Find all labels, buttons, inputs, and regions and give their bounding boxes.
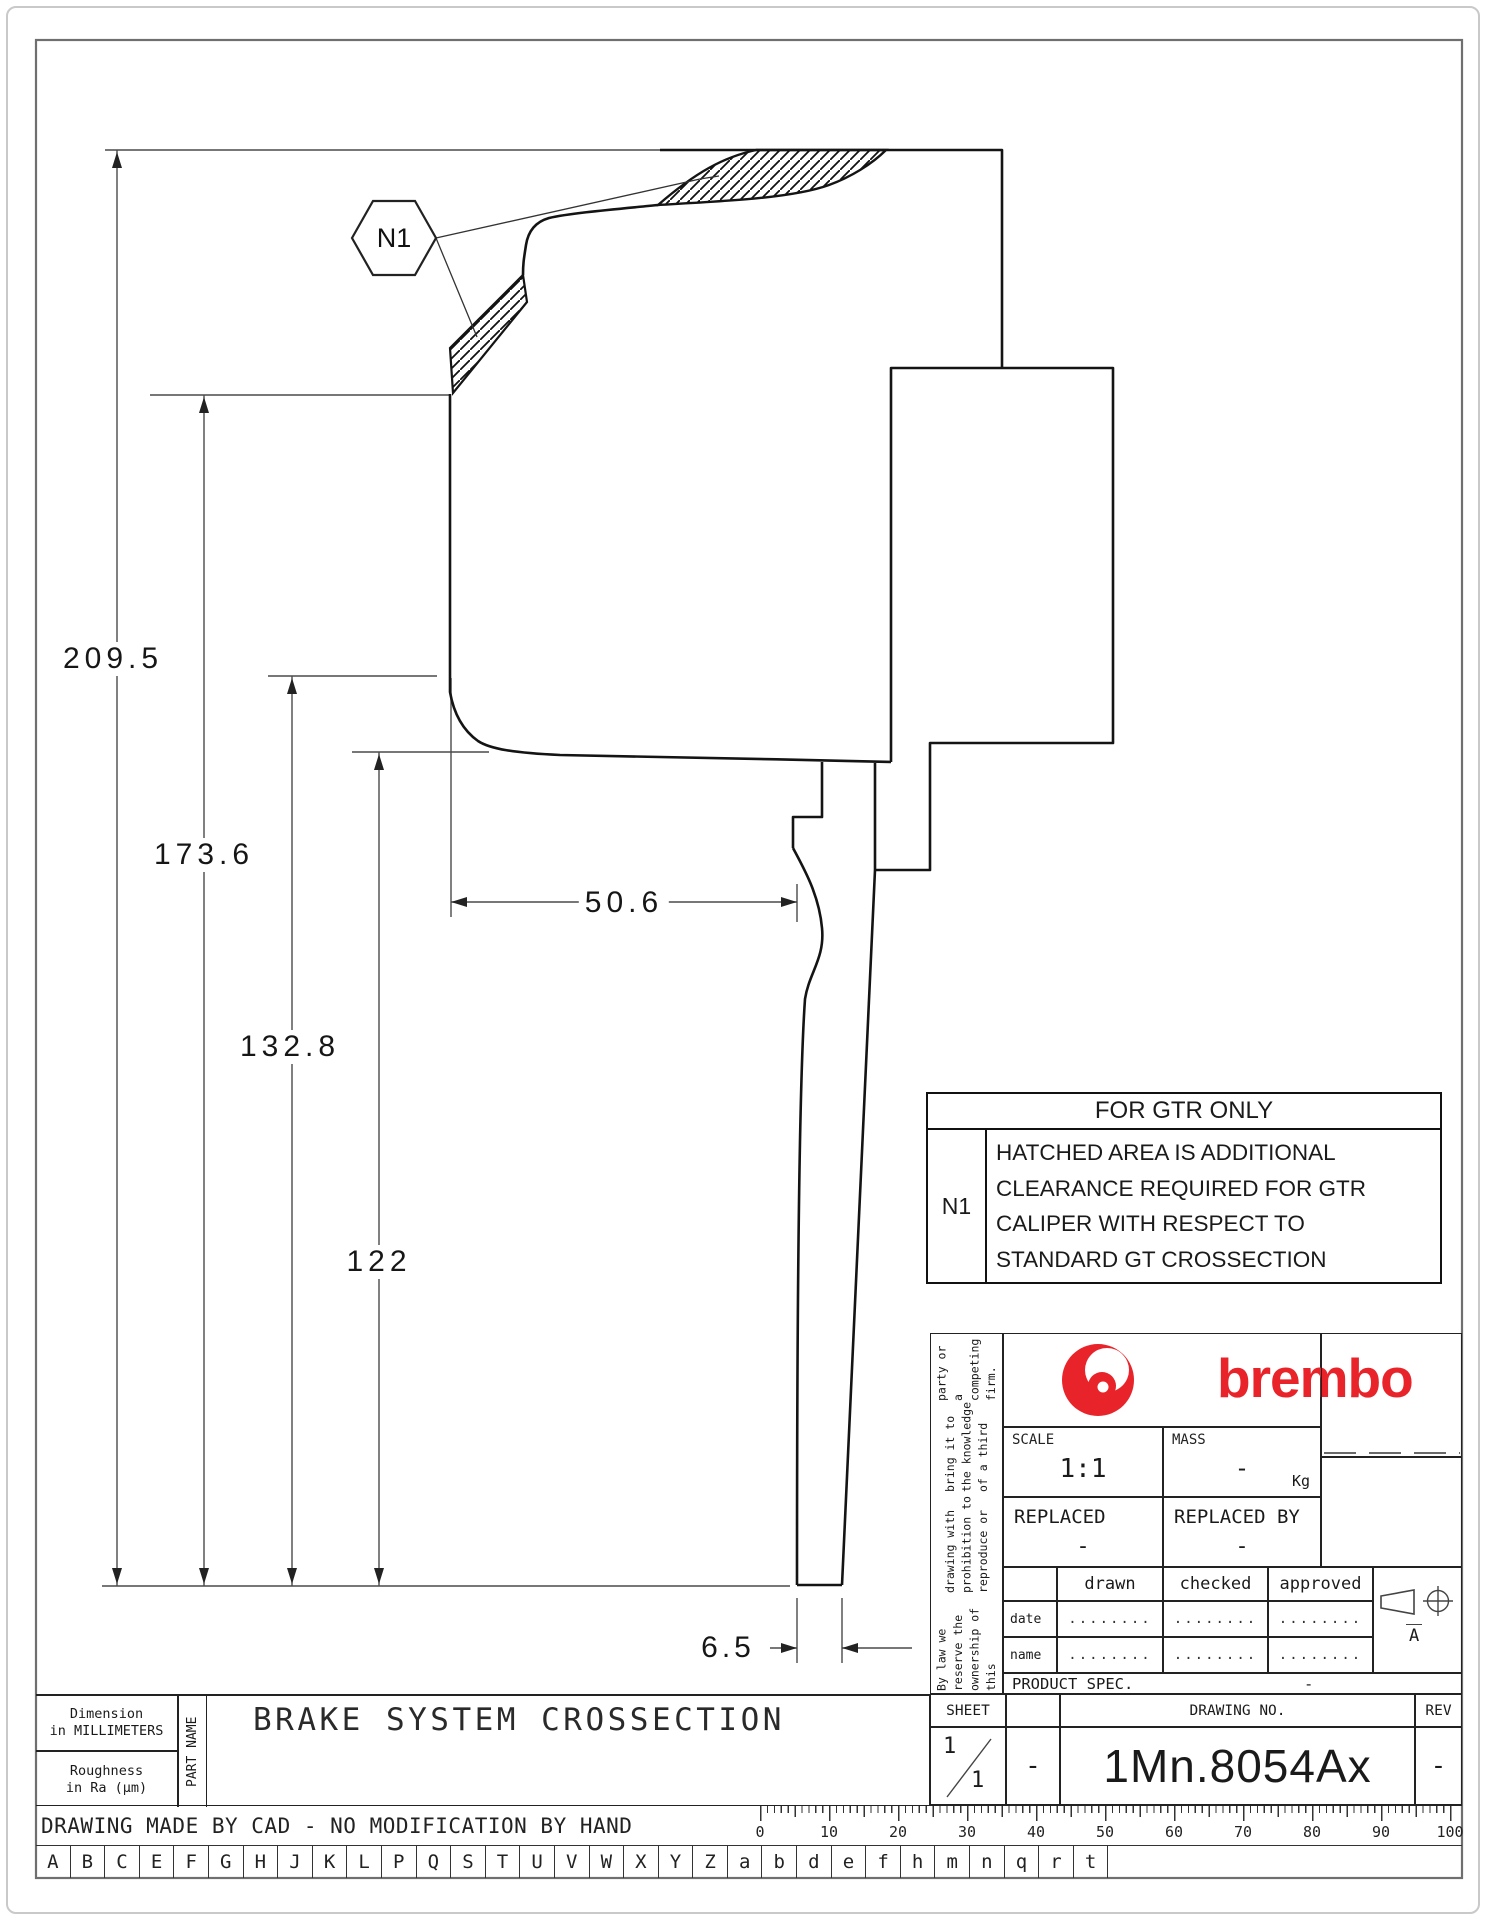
- name-approved-dots: ........: [1268, 1637, 1373, 1673]
- legal-line: party or a competing firm.: [934, 1336, 1000, 1401]
- ruler-number: 40: [1014, 1823, 1058, 1841]
- letter-box: t: [1074, 1846, 1109, 1878]
- letter-box: X: [624, 1846, 659, 1878]
- replaced-by-cell: REPLACED BY -: [1163, 1497, 1321, 1567]
- sheet-extra-value: -: [1006, 1727, 1060, 1805]
- ruler-number: 10: [807, 1823, 851, 1841]
- title-upper-right-cell: [1321, 1333, 1462, 1457]
- name-drawn-dots: ........: [1057, 1637, 1163, 1673]
- letter-box: Z: [693, 1846, 728, 1878]
- gtr-note-line: STANDARD GT CROSSECTION: [996, 1242, 1366, 1278]
- letter-box: G: [209, 1846, 244, 1878]
- sheet-num: 1: [943, 1734, 956, 1759]
- letter-box: A: [36, 1846, 71, 1878]
- letter-box: d: [797, 1846, 832, 1878]
- mass-unit: Kg: [1292, 1472, 1310, 1490]
- letter-box: C: [105, 1846, 140, 1878]
- sheet-extra-header: [1006, 1694, 1060, 1727]
- letter-box: U: [520, 1846, 555, 1878]
- replaced-label: REPLACED: [1014, 1506, 1106, 1528]
- product-spec-value: -: [1304, 1675, 1313, 1693]
- ruler-number: 20: [876, 1823, 920, 1841]
- letter-box: h: [901, 1846, 936, 1878]
- ruler-number: 0: [738, 1823, 782, 1841]
- approved-header: approved: [1268, 1567, 1373, 1601]
- ruler-number: 90: [1359, 1823, 1403, 1841]
- drawing-no-label: DRAWING NO.: [1060, 1694, 1415, 1727]
- gtr-note-line: CALIPER WITH RESPECT TO: [996, 1206, 1366, 1242]
- roughness-note-line: Roughness: [70, 1763, 143, 1780]
- scale-cell: SCALE 1:1: [1003, 1427, 1163, 1497]
- part-name-label-cell: PART NAME: [178, 1696, 207, 1807]
- mass-cell: MASS - Kg: [1163, 1427, 1321, 1497]
- name-checked-dots: ........: [1163, 1637, 1268, 1673]
- sheet-band: SHEET DRAWING NO. REV 1 1 - 1Mn.8054Ax -: [930, 1694, 1462, 1805]
- letter-box: n: [970, 1846, 1005, 1878]
- letter-box: E: [140, 1846, 175, 1878]
- title-block: By law we reserve the ownership of this …: [930, 1333, 1462, 1694]
- letter-box: T: [486, 1846, 521, 1878]
- letter-box: J: [278, 1846, 313, 1878]
- cad-note: DRAWING MADE BY CAD - NO MODIFICATION BY…: [41, 1814, 632, 1838]
- logo-cell: brembo: [1003, 1333, 1321, 1427]
- dim-label-inner: 132.8: [234, 1030, 346, 1064]
- sheet-value-cell: 1 1: [930, 1727, 1006, 1805]
- replaced-cell: REPLACED -: [1003, 1497, 1163, 1567]
- title-right-cell: [1321, 1457, 1462, 1567]
- ruler-number: 50: [1083, 1823, 1127, 1841]
- sheet-den: 1: [971, 1768, 984, 1793]
- scale-value: 1:1: [1004, 1454, 1162, 1484]
- gtr-note-line: CLEARANCE REQUIRED FOR GTR: [996, 1171, 1366, 1207]
- date-label: date: [1003, 1601, 1057, 1637]
- dimension-note-line: in MILLIMETERS: [50, 1723, 164, 1740]
- product-spec-row: PRODUCT SPEC. -: [1003, 1673, 1462, 1694]
- letter-box: S: [451, 1846, 486, 1878]
- roughness-note-line: in Ra (µm): [66, 1780, 147, 1797]
- caliper-envelope-outline: [875, 368, 1113, 870]
- dim-label-width: 50.6: [579, 886, 669, 920]
- date-checked-dots: ........: [1163, 1601, 1268, 1637]
- ruler-number: 70: [1221, 1823, 1265, 1841]
- letter-box: q: [1005, 1846, 1040, 1878]
- dim-label-low: 122: [340, 1245, 417, 1279]
- gtr-note-line: HATCHED AREA IS ADDITIONAL: [996, 1135, 1366, 1171]
- replaced-by-label: REPLACED BY: [1174, 1506, 1300, 1528]
- n1-callout-label: N1: [352, 201, 436, 275]
- dim-label-total: 209.5: [57, 642, 169, 676]
- rev-label: REV: [1415, 1694, 1462, 1727]
- letter-box: m: [935, 1846, 970, 1878]
- drawing-sheet: 209.5 173.6 132.8 122 50.6 6.5 N1 FOR GT…: [0, 0, 1486, 1920]
- letter-box: H: [244, 1846, 279, 1878]
- projection-symbol-cell: A: [1373, 1567, 1462, 1673]
- letter-box: r: [1039, 1846, 1074, 1878]
- replaced-by-value: -: [1164, 1534, 1320, 1559]
- letter-box: a: [728, 1846, 763, 1878]
- roughness-note-cell: Roughness in Ra (µm): [36, 1751, 178, 1807]
- gtr-note-title: FOR GTR ONLY: [928, 1094, 1440, 1130]
- scale-label: SCALE: [1012, 1432, 1054, 1448]
- legal-line: drawing with prohibition to reproduce or: [942, 1492, 992, 1593]
- dimension-note-cell: Dimension in MILLIMETERS: [36, 1696, 178, 1751]
- letter-box: K: [313, 1846, 348, 1878]
- sheet-label: SHEET: [930, 1694, 1006, 1727]
- ruler-number: 80: [1290, 1823, 1334, 1841]
- legal-line: By law we reserve the ownership of this: [934, 1593, 1000, 1691]
- product-spec-label: PRODUCT SPEC.: [1012, 1675, 1133, 1693]
- ruler-major-ticks: [760, 1806, 1452, 1821]
- checked-header: checked: [1163, 1567, 1268, 1601]
- letter-box: L: [347, 1846, 382, 1878]
- dimension-lines: [102, 150, 1002, 1663]
- legal-text-column: By law we reserve the ownership of this …: [930, 1333, 1003, 1694]
- letter-box: e: [832, 1846, 867, 1878]
- letter-box: V: [555, 1846, 590, 1878]
- date-approved-dots: ........: [1268, 1601, 1373, 1637]
- ruler-number: 60: [1152, 1823, 1196, 1841]
- drawing-no-value: 1Mn.8054Ax: [1060, 1727, 1415, 1805]
- drawn-header: drawn: [1057, 1567, 1163, 1601]
- dim-label-mid: 173.6: [148, 838, 260, 872]
- mass-label: MASS: [1172, 1432, 1206, 1448]
- format-letter: A: [1406, 1624, 1422, 1646]
- rev-value: -: [1415, 1727, 1462, 1805]
- replaced-value: -: [1004, 1534, 1162, 1559]
- ruler-number: 100: [1428, 1823, 1472, 1841]
- letter-box: W: [590, 1846, 625, 1878]
- gtr-note-table: FOR GTR ONLY N1 HATCHED AREA IS ADDITION…: [926, 1092, 1442, 1284]
- approval-corner-cell: [1003, 1567, 1057, 1601]
- gtr-note-ref: N1: [928, 1130, 987, 1282]
- letter-box: Y: [659, 1846, 694, 1878]
- name-label: name: [1003, 1637, 1057, 1673]
- part-name-value: BRAKE SYSTEM CROSSECTION: [253, 1702, 785, 1738]
- hatched-area-flange: [450, 275, 527, 393]
- letter-box: f: [866, 1846, 901, 1878]
- gtr-note-text: HATCHED AREA IS ADDITIONAL CLEARANCE REQ…: [987, 1130, 1372, 1282]
- letter-box: P: [382, 1846, 417, 1878]
- dim-label-thickness: 6.5: [695, 1631, 761, 1665]
- date-drawn-dots: ........: [1057, 1601, 1163, 1637]
- letters-band: A B C E F G H J K L P Q S T U V W X Y Z …: [36, 1845, 1462, 1878]
- part-name-band: Dimension in MILLIMETERS Roughness in Ra…: [36, 1694, 930, 1805]
- letter-box: F: [174, 1846, 209, 1878]
- letter-box: b: [762, 1846, 797, 1878]
- letter-box: B: [71, 1846, 106, 1878]
- dimension-note-line: Dimension: [70, 1706, 143, 1723]
- legal-line: bring it to the knowledge of a third: [942, 1401, 992, 1492]
- ruler-number: 30: [945, 1823, 989, 1841]
- letter-box: Q: [417, 1846, 452, 1878]
- hatched-area-top: [658, 150, 886, 205]
